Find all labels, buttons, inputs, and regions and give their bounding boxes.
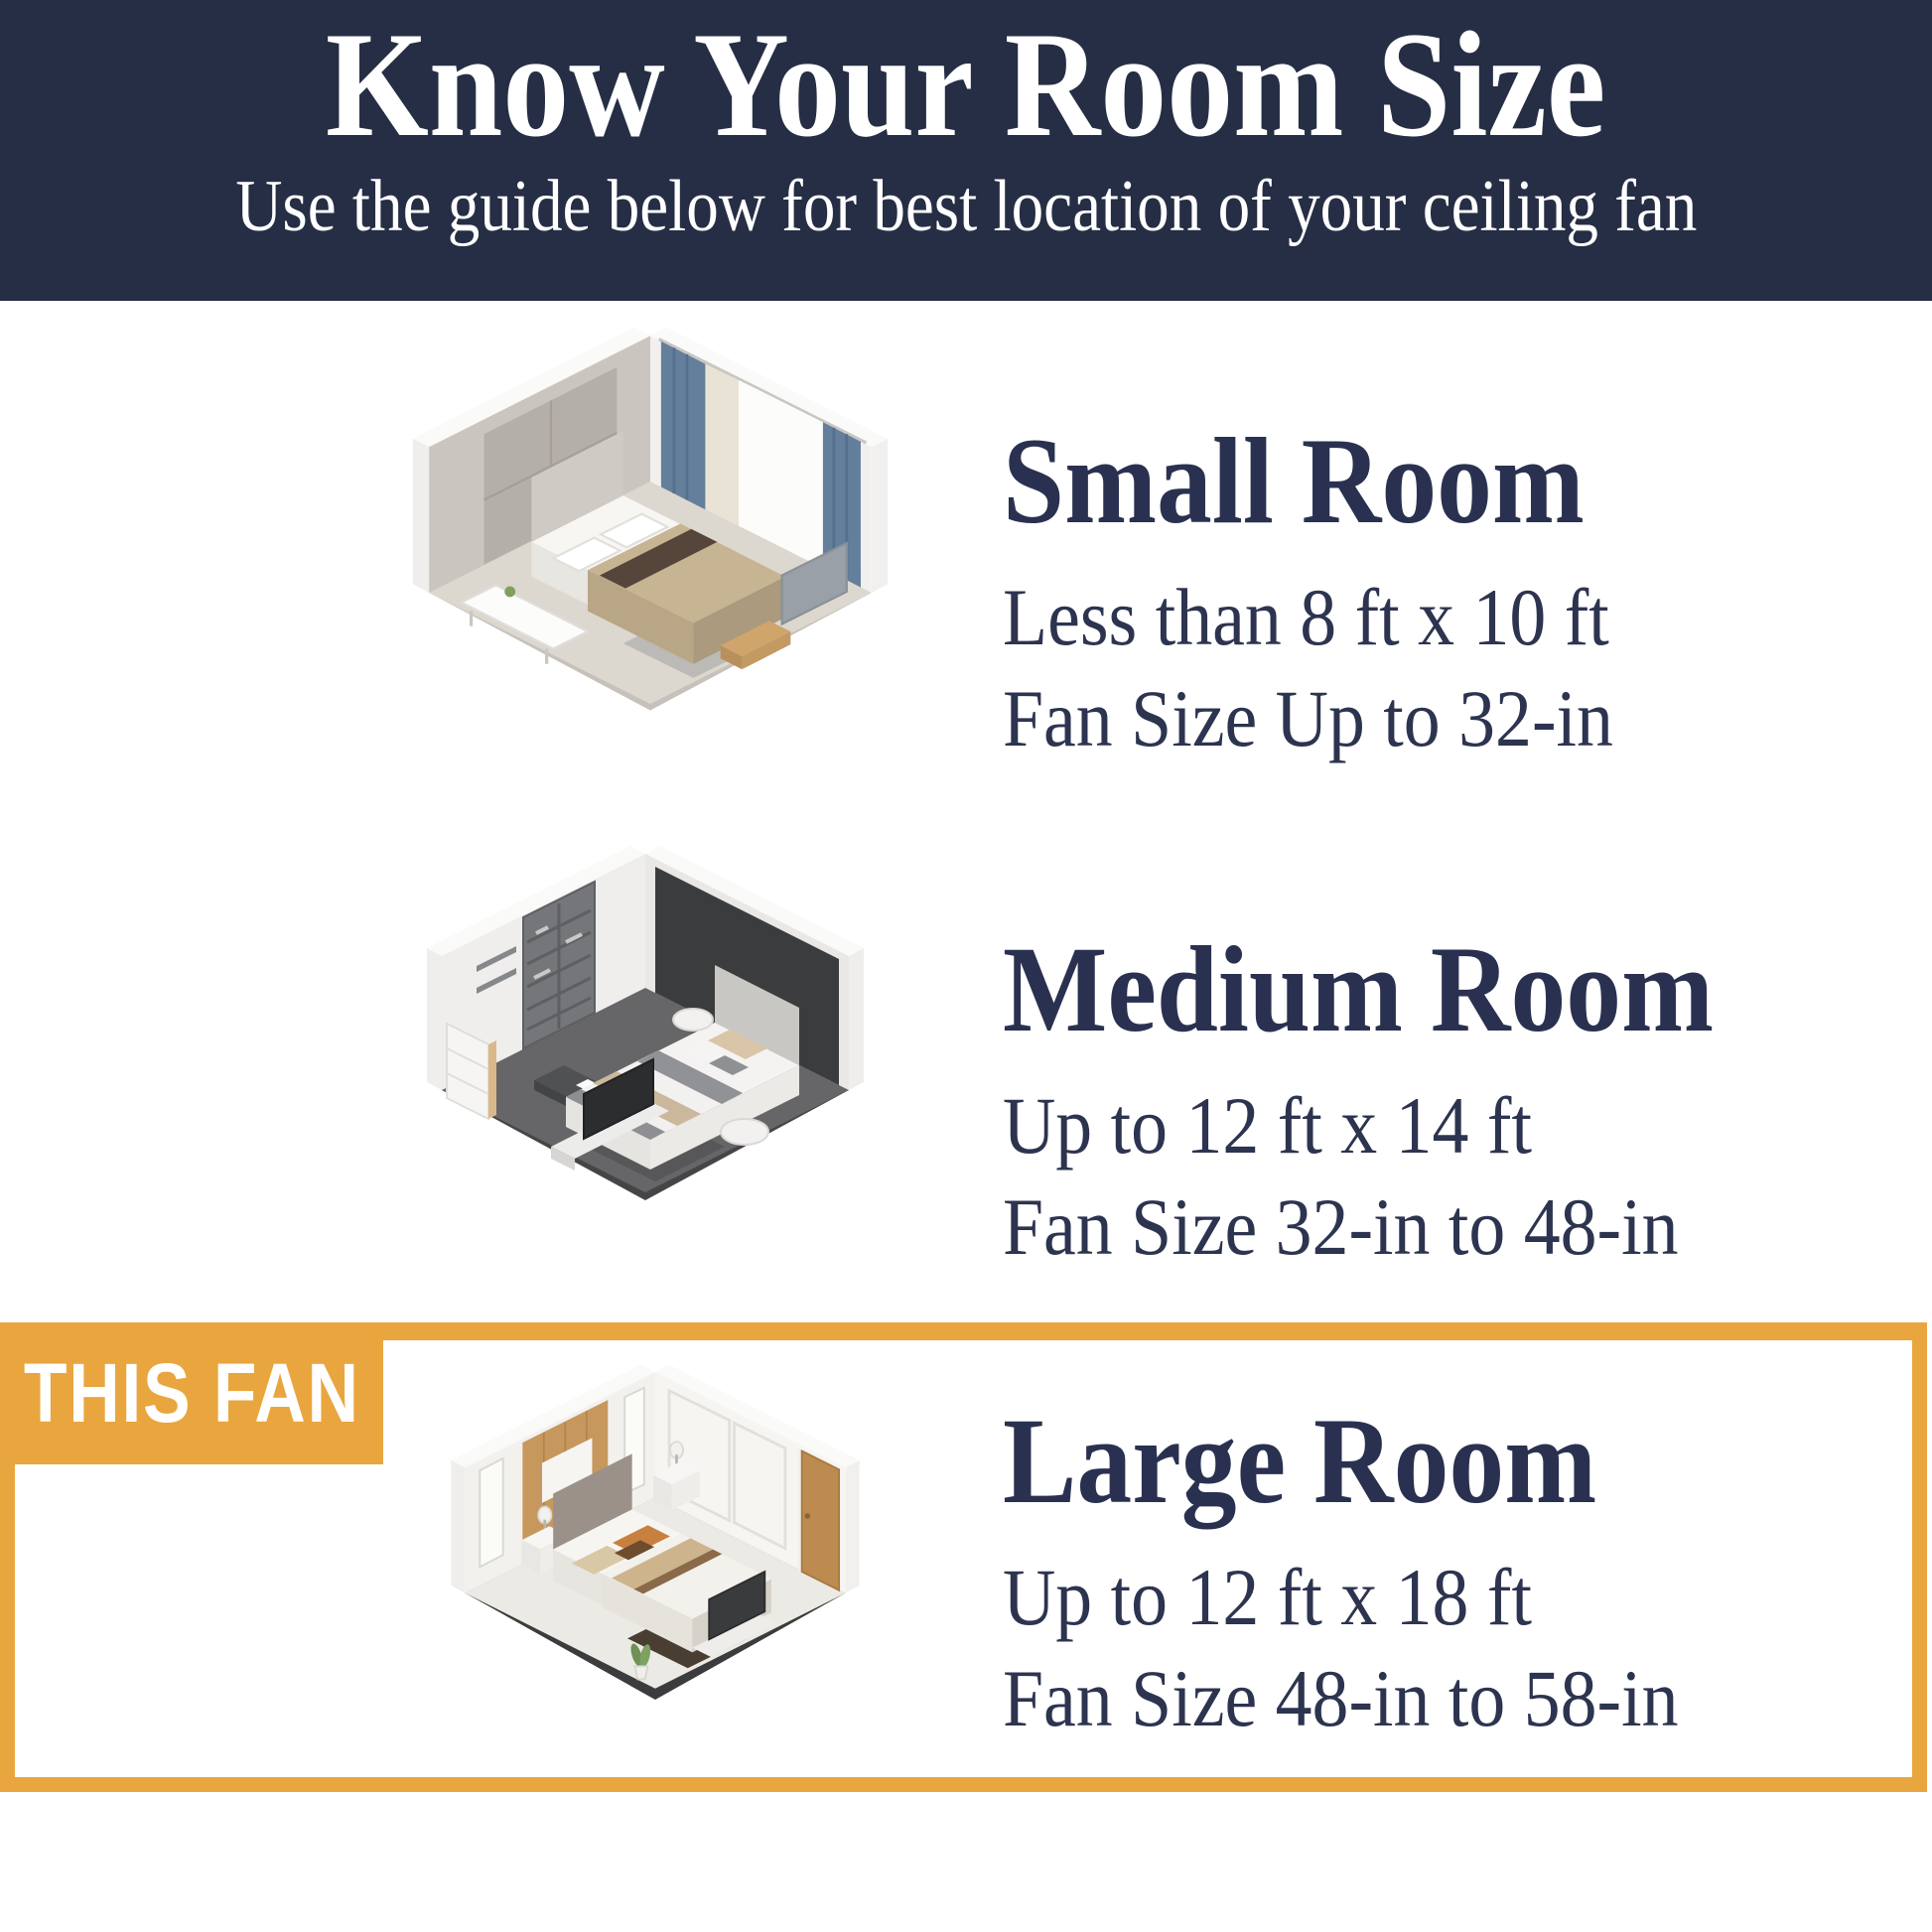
large-room-text: Large Room Up to 12 ft x 18 ft Fan Size … [1003, 1395, 1753, 1743]
small-room-text: Small Room Less than 8 ft x 10 ft Fan Si… [1003, 415, 1681, 763]
large-room-title: Large Room [1003, 1395, 1679, 1528]
large-room-fan-size: Fan Size 48-in to 58-in [1003, 1655, 1679, 1743]
header-banner: Know Your Room Size Use the guide below … [0, 0, 1932, 301]
ottoman [721, 1119, 768, 1145]
this-fan-badge: THIS FAN [0, 1322, 383, 1464]
large-room-illustration [422, 1358, 889, 1785]
medium-room-text: Medium Room Up to 12 ft x 14 ft Fan Size… [1003, 923, 1793, 1272]
medium-room-size-range: Up to 12 ft x 14 ft [1003, 1082, 1714, 1171]
medium-room-title: Medium Room [1003, 923, 1714, 1056]
this-fan-badge-label: THIS FAN [24, 1345, 360, 1442]
ottoman [673, 1009, 713, 1031]
small-room-size-range: Less than 8 ft x 10 ft [1003, 574, 1613, 662]
large-room-size-range: Up to 12 ft x 18 ft [1003, 1554, 1679, 1642]
medium-room-illustration [412, 839, 879, 1296]
small-room-title: Small Room [1003, 415, 1613, 548]
small-room-illustration [402, 320, 898, 816]
small-room-fan-size: Fan Size Up to 32-in [1003, 675, 1613, 763]
page-subtitle: Use the guide below for best location of… [0, 167, 1932, 247]
medium-room-fan-size: Fan Size 32-in to 48-in [1003, 1183, 1714, 1272]
page-title: Know Your Room Size [0, 6, 1932, 165]
door [798, 1449, 839, 1590]
